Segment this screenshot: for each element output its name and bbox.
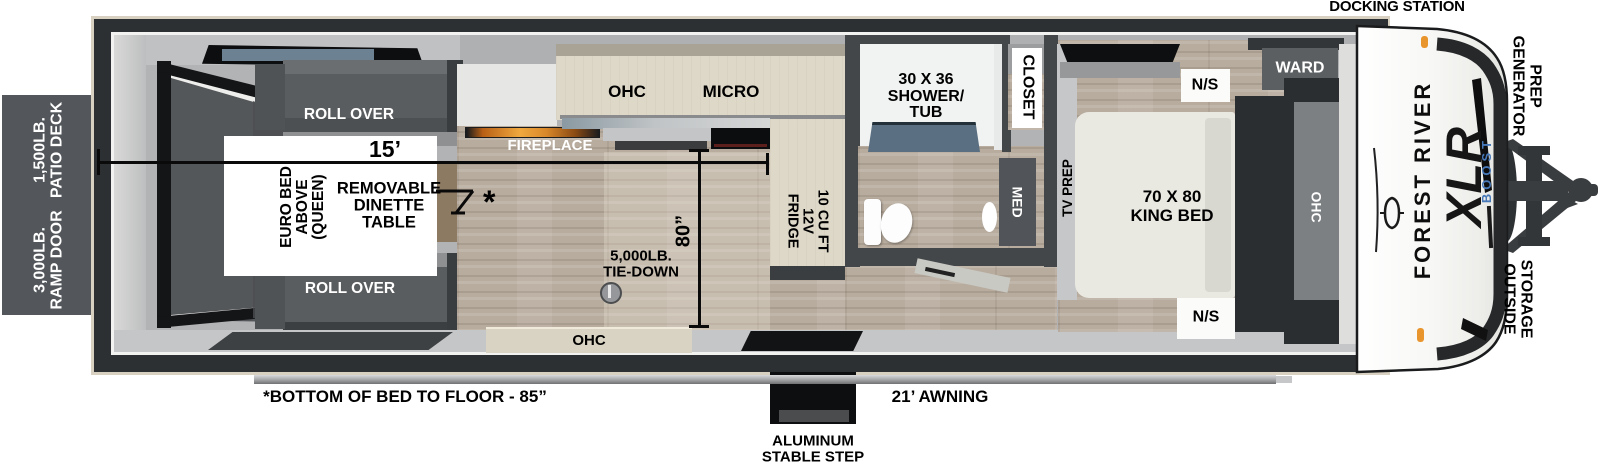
svg-text:BOOST: BOOST	[1479, 137, 1494, 203]
svg-text:*: *	[483, 184, 496, 220]
svg-text:FOREST RIVER: FOREST RIVER	[1410, 81, 1435, 280]
